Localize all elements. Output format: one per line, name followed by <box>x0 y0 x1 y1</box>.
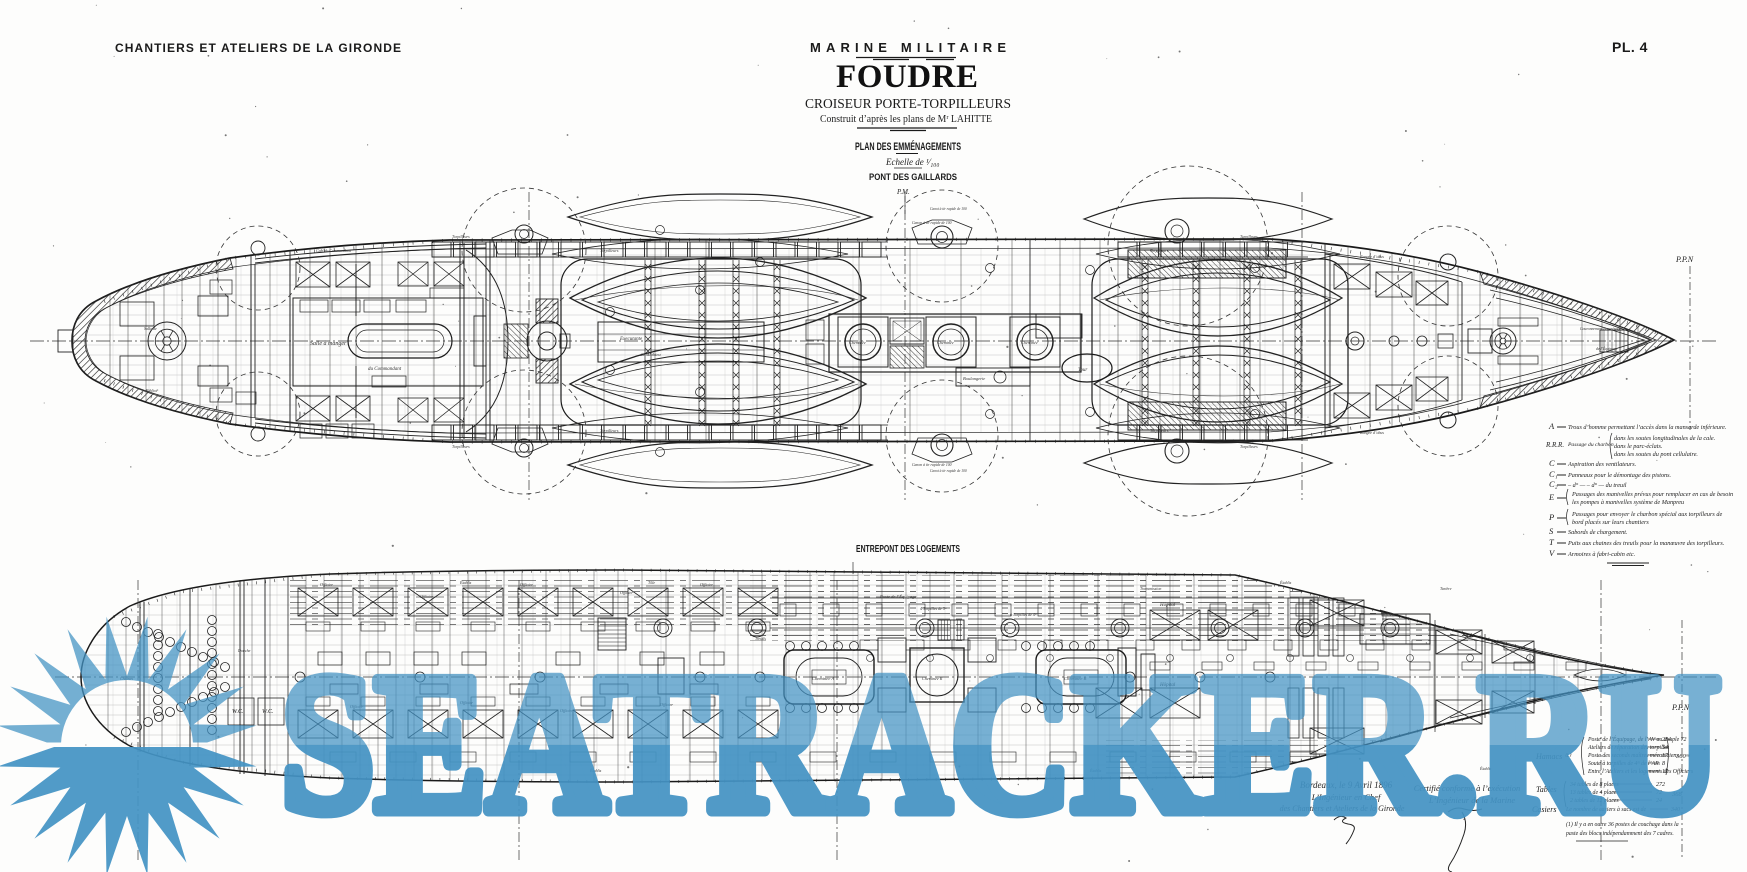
svg-text:P.M.: P.M. <box>896 188 910 196</box>
svg-text:W.C.: W.C. <box>232 709 243 715</box>
svg-text:Tabac: Tabac <box>1382 613 1395 618</box>
svg-text:Passages pour envoyer le charb: Passages pour envoyer le charbon spécial… <box>1571 511 1722 518</box>
svg-text:Panneaux pour le démontage des: Panneaux pour le démontage des pistons. <box>1567 472 1671 479</box>
svg-text:C: C <box>1549 458 1555 468</box>
svg-text:bord placés sur leurs chantier: bord placés sur leurs chantiers <box>1572 519 1649 526</box>
svg-text:C₂: C₂ <box>1549 479 1558 489</box>
svg-text:Cheminée: Cheminée <box>1021 340 1038 345</box>
svg-text:E: E <box>1548 492 1555 502</box>
svg-text:Transmission: Transmission <box>1140 586 1161 591</box>
svg-text:Officier: Officier <box>700 582 713 587</box>
svg-text:Bibliotʰ: Bibliotʰ <box>146 388 159 393</box>
svg-text:S: S <box>1549 526 1554 536</box>
svg-text:Torpilleurs: Torpilleurs <box>452 444 470 449</box>
svg-text:A: A <box>1548 421 1555 431</box>
svg-text:Officier: Officier <box>320 582 333 587</box>
svg-text:Canon à tir rapide de 100: Canon à tir rapide de 100 <box>912 463 952 467</box>
svg-text:Cheminée: Cheminée <box>937 340 954 345</box>
svg-text:Canot à tir rapide de 100: Canot à tir rapide de 100 <box>930 469 967 473</box>
svg-text:V: V <box>1549 548 1556 558</box>
svg-text:Torpilleurs: Torpilleurs <box>1240 444 1258 449</box>
svg-text:de l’Équipage: de l’Équipage <box>1596 346 1618 351</box>
svg-text:dans les soutes longitudinales: dans les soutes longitudinales de la cal… <box>1614 435 1715 442</box>
svg-text:Officier: Officier <box>420 594 433 599</box>
svg-text:du Mathieu: du Mathieu <box>640 352 661 357</box>
svg-text:Sabords de chargement.: Sabords de chargement. <box>1568 529 1628 536</box>
svg-text:dans le parc-éclats.: dans le parc-éclats. <box>1614 443 1662 450</box>
svg-text:Echelle de ¹⁄₁₀₀: Echelle de ¹⁄₁₀₀ <box>885 157 940 167</box>
svg-text:Construit d’après les plans de: Construit d’après les plans de Mʳ LAHITT… <box>820 114 992 125</box>
svg-text:CROISEUR PORTE-TORPILLEURS: CROISEUR PORTE-TORPILLEURS <box>805 96 1011 111</box>
svg-text:Aspiration des ventilateurs.: Aspiration des ventilateurs. <box>1567 461 1636 468</box>
svg-text:Salle à manger: Salle à manger <box>310 341 347 347</box>
svg-text:PONT DES GAILLARDS: PONT DES GAILLARDS <box>869 172 957 183</box>
svg-text:Tarière: Tarière <box>1440 586 1452 591</box>
svg-text:Torpilleurs: Torpilleurs <box>1240 234 1258 239</box>
svg-text:Puits aux chaines des treuils: Puits aux chaines des treuils pour la ma… <box>1567 540 1724 547</box>
svg-text:Salle de: Salle de <box>144 326 157 331</box>
svg-text:Canon à tir rapide de 100: Canon à tir rapide de 100 <box>912 221 952 225</box>
svg-text:4 Torpilles de 5ᵐ: 4 Torpilles de 5ᵐ <box>920 606 947 611</box>
svg-text:Officier: Officier <box>620 590 633 595</box>
svg-text:ENTREPONT DES LOGEMENTS: ENTREPONT DES LOGEMENTS <box>856 544 960 555</box>
svg-text:Passage du charbon: Passage du charbon <box>1567 442 1614 448</box>
svg-text:Douche: Douche <box>237 648 251 653</box>
svg-text:PLAN DES EMMÉNAGEMENTS: PLAN DES EMMÉNAGEMENTS <box>855 140 961 153</box>
svg-text:T: T <box>1549 537 1555 547</box>
svg-text:Executante: Executante <box>619 337 643 342</box>
svg-text:Établis: Établis <box>459 580 472 585</box>
svg-text:Rangée d’obus: Rangée d’obus <box>1359 254 1384 259</box>
svg-text:Tôle: Tôle <box>648 580 655 585</box>
svg-text:P.P.N: P.P.N <box>1675 255 1694 264</box>
svg-text:6 Torpilles de 4ᵐ: 6 Torpilles de 4ᵐ <box>1010 612 1037 617</box>
svg-text:Trous d’homme permettant l’acc: Trous d’homme permettant l’accès dans la… <box>1568 424 1726 431</box>
svg-text:R.R.R.: R.R.R. <box>1545 441 1564 449</box>
svg-text:PL. 4: PL. 4 <box>1612 39 1648 55</box>
svg-text:P: P <box>1548 512 1554 522</box>
svg-text:Cabᵗ du Commandant: Cabᵗ du Commandant <box>316 248 352 253</box>
svg-text:FOUDRE: FOUDRE <box>836 59 978 95</box>
svg-text:dans les soutes du pont cellul: dans les soutes du pont cellulaire. <box>1614 451 1698 458</box>
svg-text:Passages des manivelles prévus: Passages des manivelles prévus pour remp… <box>1571 491 1733 498</box>
svg-text:MARINE MILITAIRE: MARINE MILITAIRE <box>810 40 1006 55</box>
svg-text:Torpilleurs: Torpilleurs <box>1150 428 1169 433</box>
svg-text:Hôpital: Hôpital <box>1159 603 1176 608</box>
svg-text:Torpilleurs: Torpilleurs <box>600 248 619 253</box>
svg-text:Établis: Établis <box>1279 580 1292 585</box>
svg-text:Tour: Tour <box>1078 368 1087 373</box>
svg-text:W.C.: W.C. <box>262 709 273 715</box>
svg-text:Cheminée: Cheminée <box>849 340 866 345</box>
svg-text:Canot à tir rapide de 100: Canot à tir rapide de 100 <box>930 207 967 211</box>
svg-text:Officier: Officier <box>520 582 533 587</box>
svg-text:Torpilleurs: Torpilleurs <box>600 428 619 433</box>
svg-text:Rangée d’obus: Rangée d’obus <box>1359 430 1384 435</box>
svg-text:du Commandant: du Commandant <box>368 367 402 372</box>
svg-text:Boulangerie: Boulangerie <box>963 376 985 381</box>
svg-text:– d° — – d° — du treu: – d° — – d° — du treuil <box>1567 482 1627 489</box>
svg-text:les pompes à manivelles systèm: les pompes à manivelles système de Manpr… <box>1572 499 1684 506</box>
svg-text:C₁: C₁ <box>1549 469 1558 479</box>
svg-text:CHANTIERS ET ATELIERS DE LA GI: CHANTIERS ET ATELIERS DE LA GIRONDE <box>115 41 401 55</box>
svg-text:Couronnement et carénage: Couronnement et carénage <box>1580 327 1622 331</box>
svg-text:Poste de l’Équipage: Poste de l’Équipage <box>879 594 917 599</box>
svg-text:Torpilleurs: Torpilleurs <box>452 234 470 239</box>
svg-text:Armoires à fabri-cabin etc.: Armoires à fabri-cabin etc. <box>1567 551 1635 558</box>
svg-text:Torpilleurs: Torpilleurs <box>1150 248 1169 253</box>
